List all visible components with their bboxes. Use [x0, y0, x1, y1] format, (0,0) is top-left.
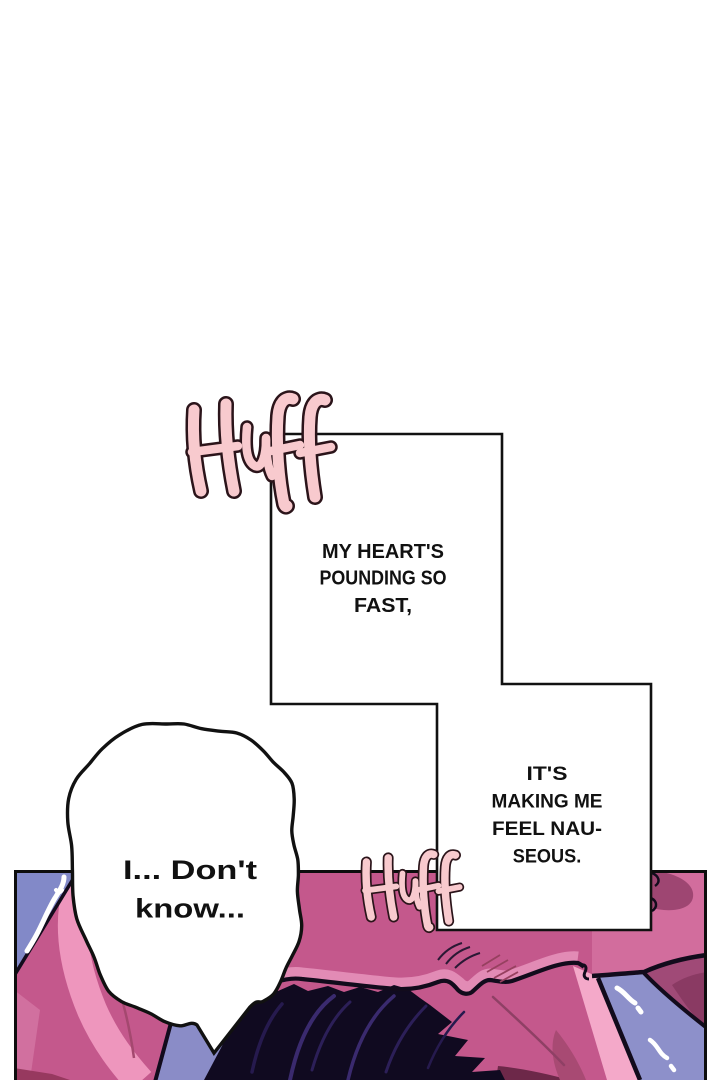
- svg-text:IT'S: IT'S: [527, 763, 568, 785]
- svg-text:know...: know...: [135, 894, 245, 924]
- svg-text:I... Don't: I... Don't: [123, 855, 257, 885]
- svg-text:FEEL NAU-: FEEL NAU-: [492, 818, 602, 840]
- svg-text:POUNDING SO: POUNDING SO: [320, 567, 447, 590]
- svg-text:SEOUS.: SEOUS.: [513, 846, 582, 868]
- svg-text:MY HEART'S: MY HEART'S: [322, 540, 444, 563]
- svg-text:MAKING ME: MAKING ME: [492, 791, 603, 813]
- svg-text:FAST,: FAST,: [354, 594, 412, 617]
